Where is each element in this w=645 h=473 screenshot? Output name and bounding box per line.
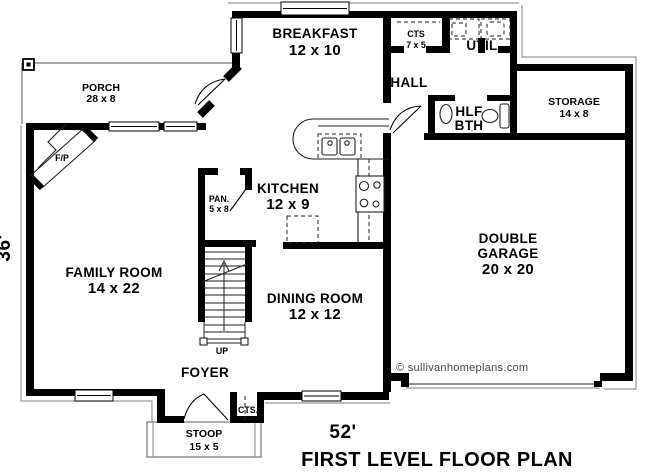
copyright-text: © sullivanhomeplans.com [396,362,528,374]
kitchen-sink-icon [322,138,355,155]
label-garage-size: 20 x 20 [482,261,534,278]
family-top-window-2 [164,122,197,131]
dimension-width: 52' [329,422,356,443]
pantry-door [230,189,246,211]
front-door [184,394,228,420]
stove-icon [356,176,384,212]
staircase [200,252,248,345]
refrigerator-icon [287,216,318,243]
label-pantry: PAN. [209,194,229,204]
label-breakfast: BREAKFAST [272,26,358,41]
label-storage: STORAGE [548,96,600,108]
label-half-bath-1: HLF [455,104,482,119]
floor-plan-page: PORCH 28 x 8 BREAKFAST 12 x 10 CTS 7 x 5… [0,0,645,473]
family-bottom-window [75,390,113,401]
label-garage-2: GARAGE [477,246,538,261]
label-util: UTIL [466,38,497,53]
dimension-height: 36' [0,234,15,261]
label-kitchen: KITCHEN [257,181,319,196]
label-garage-1: DOUBLE [479,231,538,246]
label-cts-foyer: CTS. [238,405,258,415]
garage-door-opening [391,133,424,140]
floor-plan-drawing: PORCH 28 x 8 BREAKFAST 12 x 10 CTS 7 x 5… [0,0,645,473]
washer-dryer-icon [449,19,510,39]
label-dining-room: DINING ROOM [267,291,363,306]
breakfast-top-window [281,2,349,15]
label-dining-size: 12 x 12 [289,306,341,323]
label-family-room: FAMILY ROOM [65,265,162,280]
label-fireplace: F/P [55,153,69,163]
label-foyer: FOYER [181,365,229,380]
label-family-size: 14 x 22 [88,280,140,297]
dining-bottom-window [302,391,341,401]
plan-title: FIRST LEVEL FLOOR PLAN [301,449,573,471]
label-stoop-size: 15 x 5 [189,441,218,453]
fixtures [30,19,510,421]
label-porch-size: 28 x 8 [86,93,115,105]
toilet-icon [482,104,509,128]
label-stoop: STOOP [186,428,223,440]
label-cts-hall: CTS [407,29,425,39]
family-top-window-1 [109,122,159,131]
label-hall: HALL [390,75,427,90]
label-up: UP [216,346,228,356]
label-kitchen-size: 12 x 9 [266,196,310,213]
label-pantry-size: 5 x 8 [209,204,229,214]
label-cts-hall-size: 7 x 5 [406,40,426,50]
label-storage-size: 14 x 8 [559,108,588,120]
label-half-bath-2: BTH [455,118,484,133]
bath-sink-icon [440,105,452,124]
garage-hall-door [390,106,421,133]
breakfast-left-window [231,18,242,53]
label-breakfast-size: 12 x 10 [289,42,341,59]
walls [26,11,633,423]
